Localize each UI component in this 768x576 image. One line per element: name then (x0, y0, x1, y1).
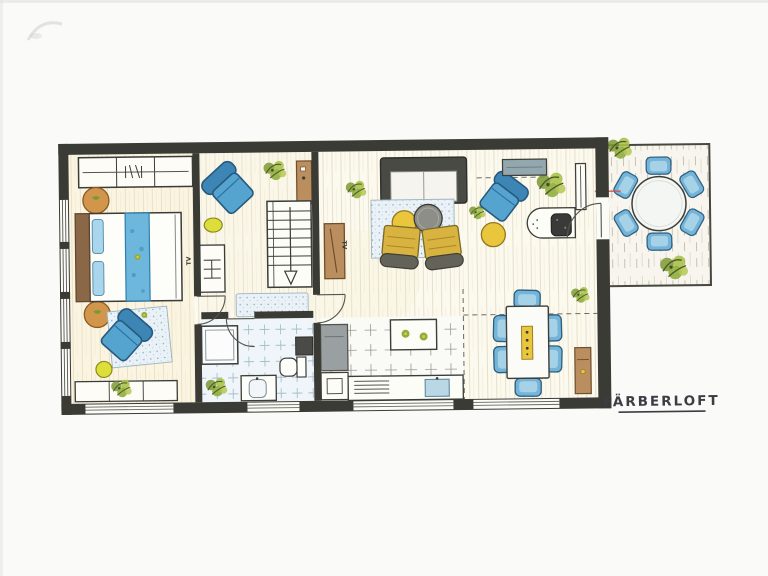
double-bed (75, 212, 182, 301)
wall-bath-right (254, 311, 313, 319)
plan-title-block: FÄRBERLOFT (603, 392, 720, 412)
bedroom-tv-label: TV (186, 256, 193, 265)
living-tv-label: TV (340, 240, 347, 249)
washer-unit (296, 337, 313, 355)
olive-armchair (380, 225, 422, 269)
hall-console (296, 161, 312, 204)
yellow-pouf (204, 218, 222, 232)
base-cabinet (321, 372, 348, 399)
radiator (575, 164, 586, 210)
wall-bedroom-lower (194, 324, 202, 402)
sofa (380, 157, 467, 204)
wall-bath-kitchen (313, 323, 321, 401)
bedside-pouf (84, 301, 110, 327)
desk-chair (551, 214, 571, 236)
dining-chair (515, 378, 541, 396)
clothes-shelf (199, 245, 225, 292)
floor-plan: TV (58, 136, 720, 419)
kitchen-sink (425, 379, 449, 396)
washbasin (241, 375, 276, 400)
tall-unit (320, 324, 348, 370)
desk (527, 208, 575, 239)
plan-title: FÄRBERLOFT (603, 392, 720, 410)
kitchen-counter (348, 375, 463, 400)
shower (201, 326, 237, 364)
title-underline (619, 411, 706, 412)
tv-lowboard (324, 223, 345, 278)
yellow-pouf (96, 361, 112, 377)
floor-plan-canvas: TV (0, 0, 768, 576)
yellow-pouf (481, 223, 505, 247)
staircase (267, 201, 312, 288)
toilet (280, 357, 306, 377)
pillow (92, 219, 103, 253)
bedside-pouf (83, 187, 109, 213)
terrace-round-table (632, 176, 687, 231)
terrace-chair (646, 157, 671, 174)
terrace-chair (647, 233, 672, 250)
headboard (75, 214, 90, 302)
terrace (606, 137, 711, 287)
dining-console (575, 347, 592, 393)
olive-armchair (421, 225, 464, 271)
scanned-floor-plan-page: TV (0, 0, 768, 576)
kitchen-island (390, 319, 436, 350)
wardrobe (78, 156, 192, 187)
pillow (93, 261, 104, 295)
